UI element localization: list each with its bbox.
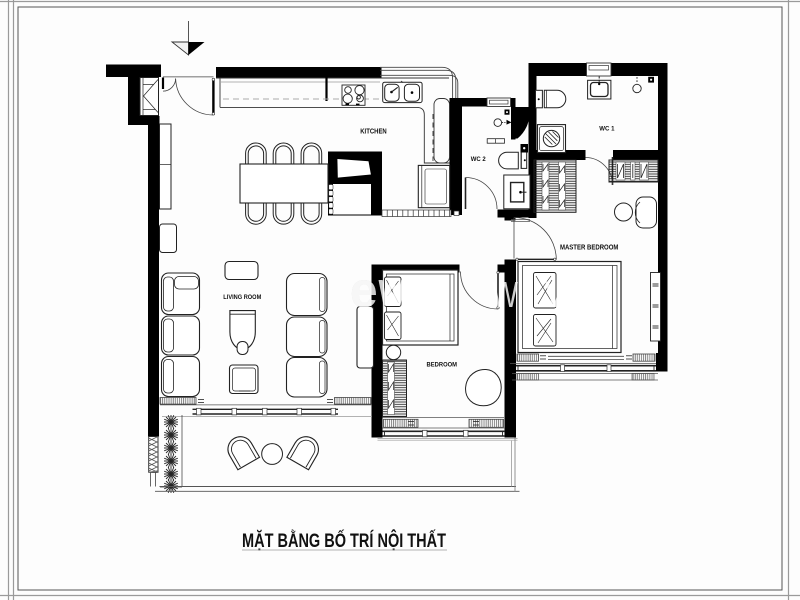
svg-text:WC 1: WC 1 — [599, 125, 615, 132]
svg-text:W: W — [492, 274, 518, 315]
svg-text:MASTER BEDROOM: MASTER BEDROOM — [560, 245, 619, 252]
svg-text:WC 2: WC 2 — [471, 156, 486, 163]
svg-text:KITCHEN: KITCHEN — [360, 127, 387, 136]
svg-text:MẶT BẰNG BỐ TRÍ NỘI THẤT: MẶT BẰNG BỐ TRÍ NỘI THẤT — [242, 530, 446, 552]
svg-text:BEDROOM: BEDROOM — [427, 361, 458, 368]
svg-text:e: e — [350, 262, 378, 318]
svg-text:W: W — [379, 273, 406, 314]
svg-text:LIVING ROOM: LIVING ROOM — [223, 294, 261, 301]
svg-text:W: W — [545, 274, 580, 315]
